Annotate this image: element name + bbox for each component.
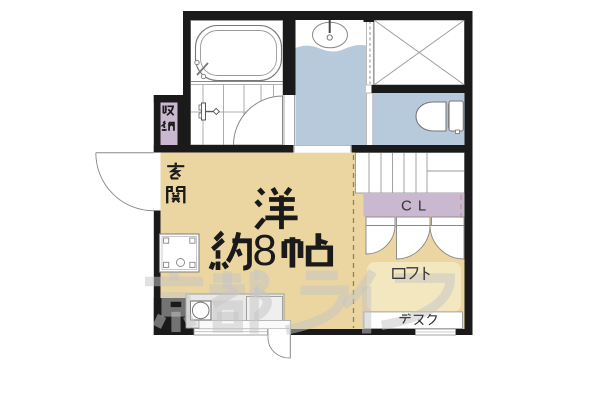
svg-text:8: 8 <box>253 226 277 275</box>
svg-text:CL: CL <box>401 198 432 215</box>
